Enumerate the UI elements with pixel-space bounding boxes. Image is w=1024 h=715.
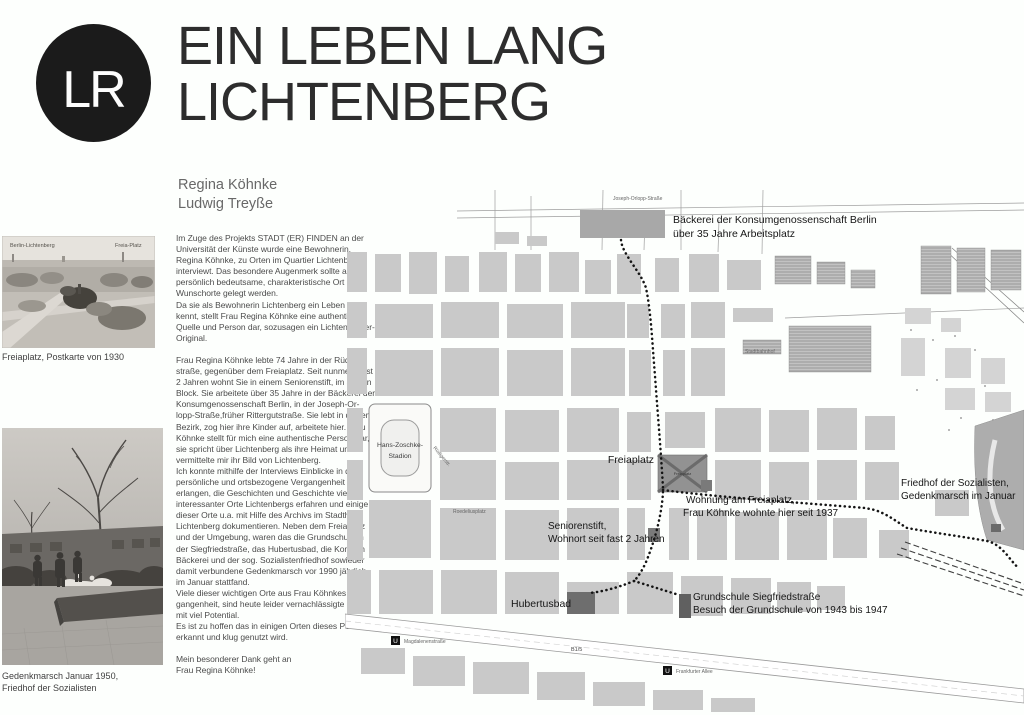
map-label-joseph-orlopp: Joseph-Orlopp-Straße <box>613 196 663 202</box>
map-label-friedhof-2: Gedenkmarsch im Januar <box>901 491 1016 502</box>
photo-freiaplatz-postcard: Berlin-Lichtenberg Freia-Platz <box>2 236 155 348</box>
map-label-freiaplatz: Freiaplatz <box>608 454 654 466</box>
poster-canvas: LR EIN LEBEN LANG LICHTENBERG Regina Köh… <box>0 0 1024 715</box>
map-label-grundschule-2: Besuch der Grundschule von 1943 bis 1947 <box>693 605 888 616</box>
map-label-baeckerei-1: Bäckerei der Konsumgenossenschaft Berlin <box>673 214 877 226</box>
map-label-friedhof-1: Friedhof der Sozialisten, <box>901 478 1009 489</box>
title-line-1: EIN LEBEN LANG <box>177 18 607 74</box>
map-label-roedeliusplatz: Roedeliusplatz <box>453 509 486 515</box>
grundschule-building <box>679 594 691 618</box>
map-label-stadion-1: Hans-Zoschke- <box>377 442 423 449</box>
map-label-grundschule-1: Grundschule Siegfriedstraße <box>693 592 821 603</box>
lichtenberg-map: U Magdalenenstraße U Frankfurter Allee B… <box>345 190 1024 715</box>
author-2: Ludwig Treyße <box>178 195 277 214</box>
u2-label: Frankfurter Allee <box>676 669 713 675</box>
railway-lines <box>897 542 1024 596</box>
logo-badge: LR <box>36 24 151 142</box>
photo2-caption: Gedenkmarsch Januar 1950, Friedhof der S… <box>2 670 118 694</box>
u-bahn-icon: U <box>665 668 670 675</box>
page-title: EIN LEBEN LANG LICHTENBERG <box>177 18 607 130</box>
photo1-caption: Freiaplatz, Postkarte von 1930 <box>2 352 124 362</box>
clinic-blocks <box>901 308 1011 412</box>
hubertusbad-building <box>567 592 595 614</box>
map-label-wohnung-1: Wohnung am Freiaplatz, <box>686 495 795 506</box>
map-label-b15: B1/5 <box>571 647 582 653</box>
baeckerei-building <box>580 210 665 238</box>
map-label-baeckerei-2: über 35 Jahre Arbeitsplatz <box>673 228 795 240</box>
photo1-overlay-right: Freia-Platz <box>115 243 142 249</box>
map-label-stadtbahnhof: Stadtbahnhof <box>745 349 775 355</box>
wohnung-building <box>701 480 712 491</box>
map-label-seniorenstift-1: Seniorenstift, <box>548 521 606 532</box>
stadtbahnhof-building <box>789 326 871 372</box>
u-bahn-icon: U <box>393 638 398 645</box>
map-label-seniorenstift-2: Wohnort seit fast 2 Jahren <box>548 534 665 545</box>
map-label-freiaplatz-small: Freiaplatz <box>674 471 692 476</box>
title-line-2: LICHTENBERG <box>177 74 607 130</box>
memorial-site <box>991 524 1001 532</box>
logo-initials: LR <box>62 46 124 120</box>
photo1-overlay-left: Berlin-Lichtenberg <box>10 243 55 249</box>
authors: Regina Köhnke Ludwig Treyße <box>178 176 277 213</box>
map-label-wohnung-2: Frau Köhnke wohnte hier seit 1937 <box>683 508 839 519</box>
author-1: Regina Köhnke <box>178 176 277 195</box>
photo-gedenkmarsch <box>2 428 163 665</box>
industrial-buildings <box>743 246 1021 372</box>
map-label-stadion-2: Stadion <box>388 453 411 460</box>
u1-label: Magdalenenstraße <box>404 639 446 645</box>
map-label-hubertusbad: Hubertusbad <box>511 598 571 610</box>
